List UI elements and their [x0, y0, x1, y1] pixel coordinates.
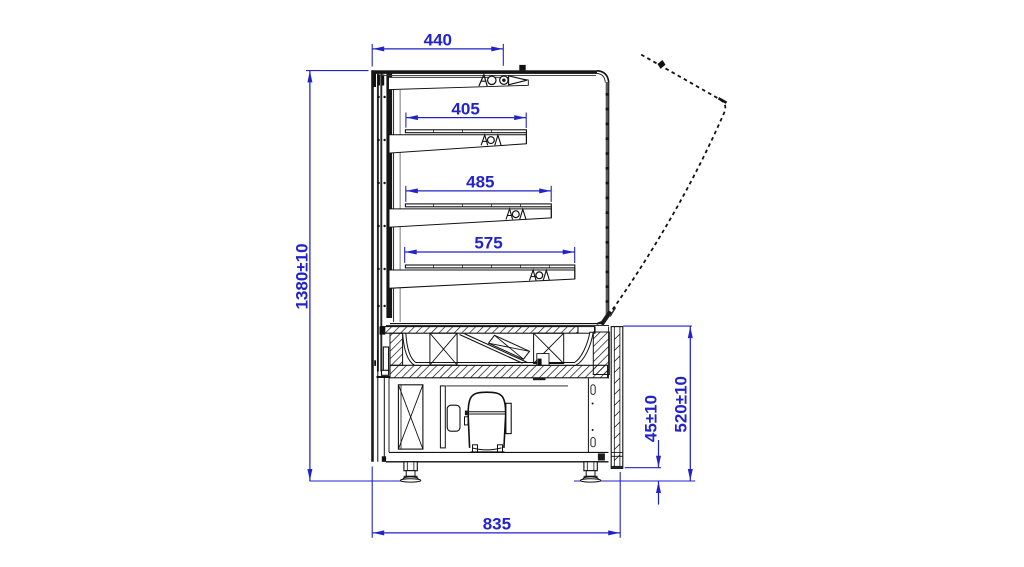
svg-text:835: 835	[483, 515, 511, 534]
svg-text:1380±10: 1380±10	[292, 243, 311, 309]
svg-text:405: 405	[451, 99, 479, 118]
svg-text:575: 575	[474, 234, 502, 253]
svg-text:440: 440	[424, 31, 452, 50]
svg-text:520±10: 520±10	[672, 376, 691, 433]
svg-text:485: 485	[466, 173, 494, 192]
svg-text:45±10: 45±10	[642, 395, 661, 442]
